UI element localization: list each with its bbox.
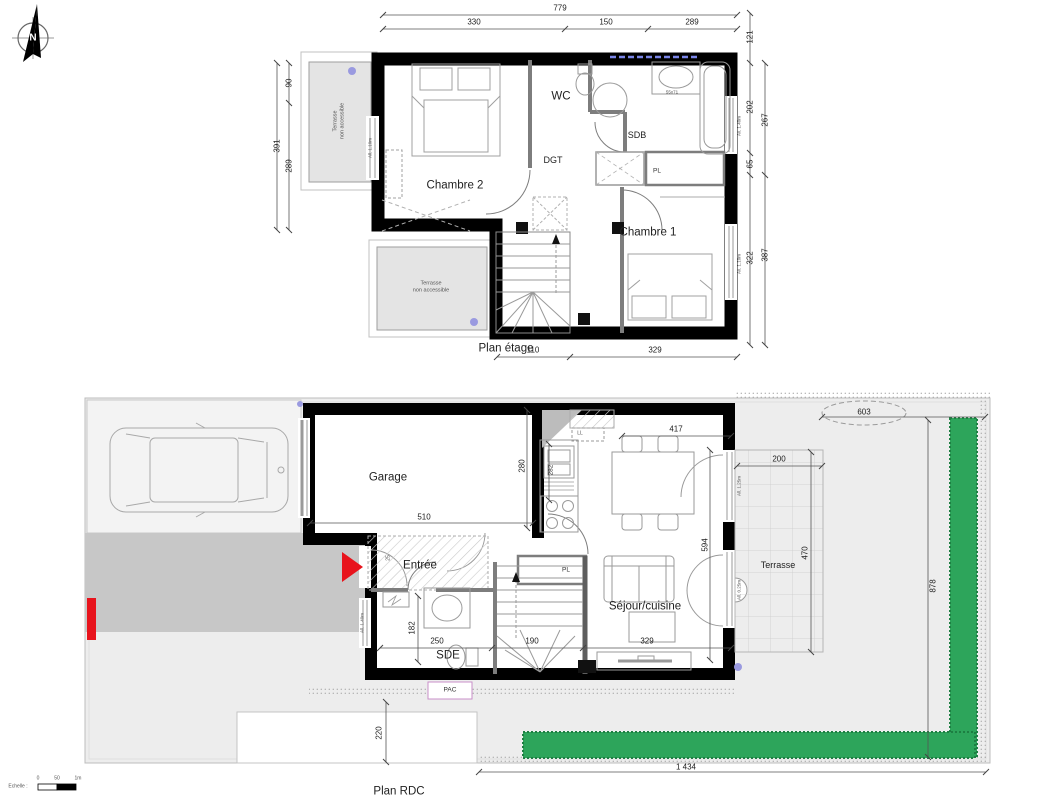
rdc-title: Plan RDC: [373, 786, 424, 799]
dim-entry-25: 25: [386, 555, 392, 561]
dim-top-left: 330: [467, 19, 480, 28]
room-terrasse: Terrasse: [761, 561, 796, 571]
dim-garden-220: 220: [376, 726, 385, 739]
dim-garage-280: 280: [519, 459, 528, 472]
floor-plan-sheet: N 779 330 150 289 121 202 267 65 322 387…: [0, 0, 1058, 800]
room-garage: Garage: [369, 472, 407, 485]
dim-right-267: 267: [762, 113, 771, 126]
dim-right-387: 387: [762, 248, 771, 261]
dim-right-202: 202: [747, 100, 756, 113]
sill-chambre2: All. 1.10m: [369, 138, 374, 158]
dim-sejour-594: 594: [702, 538, 711, 551]
sink-size-label: 55x71: [666, 91, 678, 96]
terrace-bottom-label: Terrasse non accessible: [413, 281, 449, 296]
dim-bottom-329: 329: [648, 347, 661, 356]
label-lave-linge: LL: [577, 431, 583, 437]
dim-left-289: 289: [286, 159, 295, 172]
room-chambre2: Chambre 2: [427, 180, 484, 193]
label-pac: PAC: [444, 686, 457, 693]
room-sejour: Séjour/cuisine: [609, 601, 681, 614]
scale-50: 50: [54, 776, 60, 782]
dim-right-65: 65: [747, 160, 756, 169]
dim-sde-182: 182: [409, 621, 418, 634]
dim-stairs-190: 190: [525, 638, 538, 647]
hedge-right: [950, 418, 977, 756]
sill-sdb: All. 1.40m: [738, 116, 743, 136]
sill-sejour-1: All. 1.25m: [738, 476, 743, 496]
dim-left-391: 391: [274, 139, 283, 152]
sill-sde: All. 1.40m: [361, 613, 366, 633]
hedge-bottom: [523, 732, 975, 758]
room-entree: Entrée: [403, 560, 437, 573]
dim-salon-329: 329: [640, 638, 653, 647]
sill-sejour-2: All. 0.25m: [738, 580, 743, 600]
dim-terrasse-470: 470: [802, 546, 811, 559]
scale-bar-icon: [38, 784, 76, 790]
dim-terrasse-200: 200: [772, 456, 785, 465]
dim-top-right: 289: [685, 19, 698, 28]
dim-right-322: 322: [747, 251, 756, 264]
street-marker: [87, 598, 96, 640]
scale-1m: 1m: [75, 776, 82, 782]
dim-garage-510: 510: [417, 514, 430, 523]
label-placard-rdc: PL: [562, 566, 570, 573]
driveway: [85, 533, 365, 632]
room-dgt: DGT: [544, 156, 563, 166]
dim-left-90: 90: [286, 79, 295, 88]
scale-label: Echelle :: [8, 784, 27, 790]
dim-right-121: 121: [747, 30, 756, 43]
scale-0: 0: [37, 776, 40, 782]
entry-arrow: [342, 552, 363, 582]
dim-kitchen-282: 282: [547, 465, 554, 476]
etage-title: Plan étage: [479, 343, 534, 356]
label-placard-etage: PL: [653, 167, 661, 174]
room-sde: SDE: [436, 650, 460, 663]
dim-garden-878: 878: [930, 579, 939, 592]
sill-chambre1: All. 1.10m: [738, 254, 743, 274]
room-chambre1: Chambre 1: [620, 227, 677, 240]
dim-total-width: 779: [553, 5, 566, 14]
room-sdb: SDB: [628, 131, 647, 141]
plan-linework: [0, 0, 1058, 800]
room-wc: WC: [551, 91, 570, 104]
dim-sde-250: 250: [430, 638, 443, 647]
parking-area: [87, 400, 301, 533]
terrace-left-label: Terrasse non accessible: [333, 103, 348, 139]
dim-sejour-417: 417: [669, 426, 682, 435]
dim-garden-603: 603: [857, 409, 870, 418]
dim-garden-1434: 1 434: [676, 764, 696, 773]
dim-top-mid: 150: [599, 19, 612, 28]
north-letter: N: [29, 33, 36, 44]
